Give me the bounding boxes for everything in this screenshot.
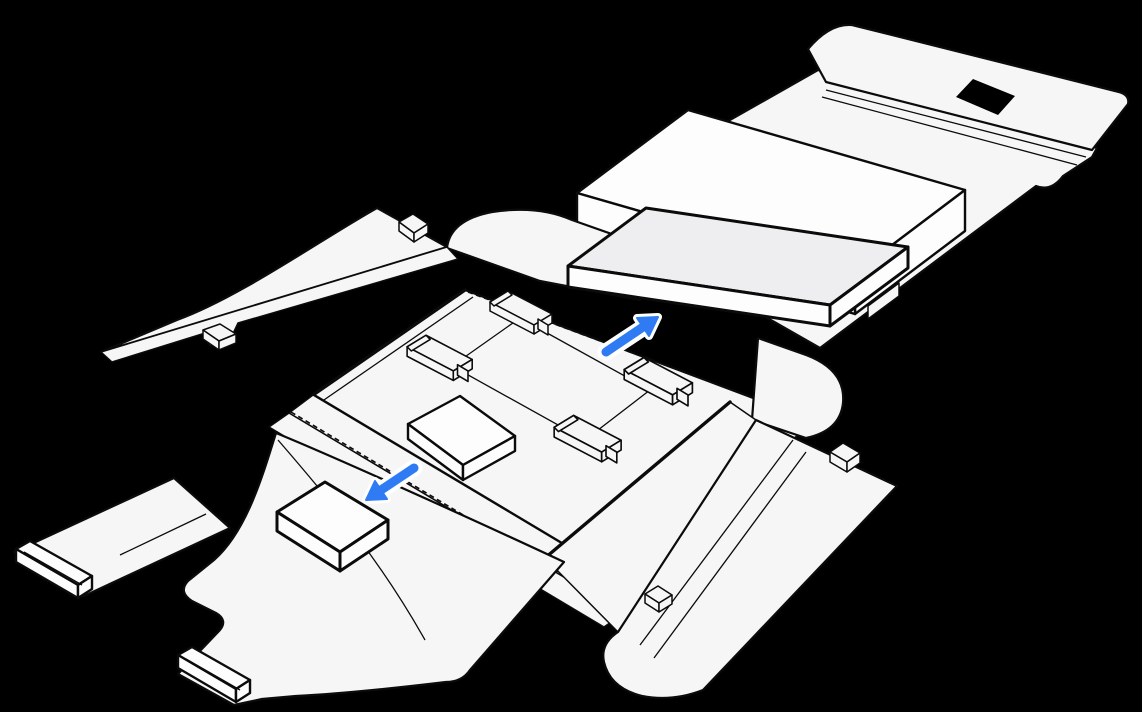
- arrow-up-right-icon: [606, 317, 658, 352]
- packing-illustration-stage: [0, 0, 1142, 712]
- left-flap-band: [101, 208, 447, 352]
- unfolded-box-packing-diagram: [0, 0, 1142, 712]
- back-wall-right-bulge: [752, 338, 843, 438]
